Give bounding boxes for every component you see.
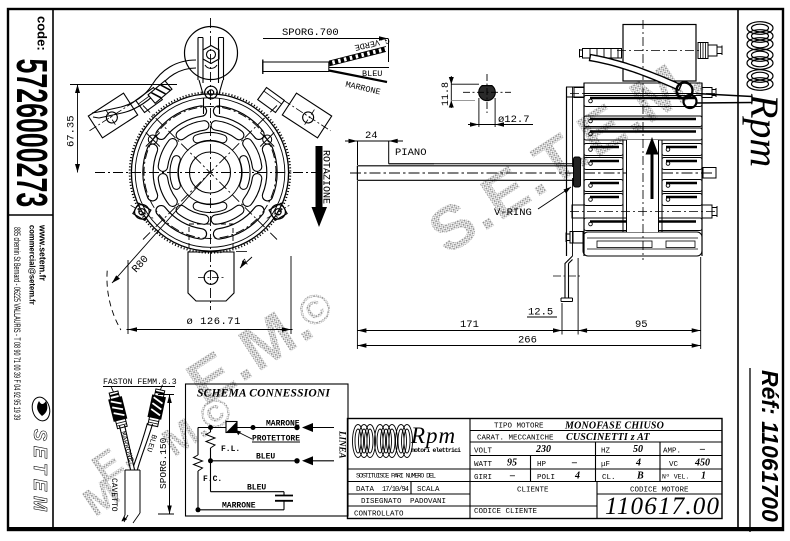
svg-text:MONOFASE CHIUSO: MONOFASE CHIUSO: [564, 421, 664, 432]
svg-text:CL.: CL.: [602, 474, 616, 482]
svg-text:GIRI: GIRI: [474, 474, 492, 482]
svg-text:B: B: [636, 471, 644, 482]
svg-text:450: 450: [694, 458, 710, 469]
svg-text:SPORG.700: SPORG.700: [282, 27, 339, 39]
svg-text:–: –: [699, 444, 705, 455]
svg-text:R80: R80: [130, 254, 152, 276]
svg-text:VC: VC: [669, 461, 679, 469]
svg-text:50: 50: [633, 444, 643, 455]
svg-text:DISEGNATO: DISEGNATO: [361, 498, 402, 506]
svg-text:24: 24: [365, 130, 378, 142]
svg-text:HZ: HZ: [601, 448, 611, 456]
svg-text:230: 230: [535, 444, 551, 455]
svg-text:–: –: [509, 471, 515, 482]
svg-text:HP: HP: [537, 461, 547, 469]
svg-text:MARRONE: MARRONE: [344, 80, 381, 98]
svg-text:motori elettrici: motori elettrici: [411, 447, 461, 454]
svg-text:TIPO MOTORE: TIPO MOTORE: [494, 423, 544, 431]
svg-text:SPORG.150: SPORG.150: [158, 437, 169, 489]
svg-text:SOSTITUISCE PARI NUMERO DEL: SOSTITUISCE PARI NUMERO DEL: [356, 473, 436, 481]
svg-text:110617.00: 110617.00: [605, 493, 720, 520]
svg-text:95: 95: [507, 458, 517, 469]
svg-text:CODICE CLIENTE: CODICE CLIENTE: [474, 508, 538, 516]
svg-text:CARAT. MECCANICHE: CARAT. MECCANICHE: [477, 435, 554, 443]
svg-text:AMP.: AMP.: [663, 448, 681, 456]
svg-text:4: 4: [574, 471, 580, 482]
svg-text:F.C.: F.C.: [203, 475, 222, 484]
svg-text:PROTETTORE: PROTETTORE: [252, 435, 300, 444]
svg-text:12.5: 12.5: [528, 307, 553, 319]
svg-text:PIANO: PIANO: [395, 147, 427, 159]
svg-text:F.L.: F.L.: [221, 445, 240, 454]
svg-text:MARRONE: MARRONE: [222, 502, 256, 511]
svg-text:BLEU: BLEU: [247, 484, 266, 493]
svg-text:commercial@setem.fr: commercial@setem.fr: [27, 225, 36, 305]
svg-text:POLI: POLI: [537, 474, 555, 482]
svg-text:CONTROLLATO: CONTROLLATO: [354, 511, 404, 519]
svg-text:CAVETTO: CAVETTO: [109, 478, 118, 512]
svg-text:11.8: 11.8: [441, 82, 452, 106]
svg-text:–: –: [571, 458, 577, 469]
svg-text:MARRONE: MARRONE: [266, 420, 300, 429]
svg-text:ø12.7: ø12.7: [498, 114, 530, 126]
svg-text:1: 1: [701, 471, 706, 482]
svg-text:SETEM: SETEM: [30, 429, 50, 516]
svg-text:ROTAZIONE: ROTAZIONE: [320, 150, 331, 204]
svg-text:WATT: WATT: [474, 461, 493, 469]
svg-text:VOLT: VOLT: [474, 448, 493, 456]
svg-text:DATA: DATA: [356, 486, 375, 494]
svg-text:Réf: 11061700: Réf: 11061700: [757, 370, 783, 522]
svg-text:SCALA: SCALA: [417, 486, 440, 494]
svg-text:95: 95: [635, 319, 648, 331]
svg-text:5726000273: 5726000273: [7, 59, 56, 208]
svg-text:Rpm: Rpm: [410, 423, 456, 448]
svg-text:17/10/94: 17/10/94: [382, 486, 409, 494]
svg-text:885 chemin St Bernard - 0622: 885 chemin St Bernard - 06225 VALLAURIS …: [12, 227, 23, 420]
svg-text:ø 126.71: ø 126.71: [187, 316, 241, 328]
svg-text:μF: μF: [601, 461, 610, 469]
svg-text:Rpm: Rpm: [742, 93, 787, 167]
svg-text:BLEU: BLEU: [256, 453, 275, 462]
svg-text:www.setem.fr: www.setem.fr: [37, 224, 47, 281]
svg-text:67.35: 67.35: [66, 115, 78, 147]
svg-text:V-RING: V-RING: [494, 207, 532, 219]
svg-text:PADOVANI: PADOVANI: [410, 498, 446, 506]
svg-text:code:: code:: [35, 16, 50, 51]
svg-text:LINEA: LINEA: [338, 430, 348, 459]
svg-text:CLIENTE: CLIENTE: [517, 487, 549, 495]
svg-text:266: 266: [518, 335, 537, 347]
svg-text:4: 4: [635, 458, 641, 469]
svg-text:FASTON FEMM.6.3: FASTON FEMM.6.3: [103, 378, 177, 387]
svg-text:Nº VEL.: Nº VEL.: [662, 474, 689, 481]
svg-text:171: 171: [460, 319, 479, 331]
svg-text:SCHEMA CONNESSIONI: SCHEMA CONNESSIONI: [197, 388, 330, 400]
svg-text:BLEU: BLEU: [362, 69, 382, 79]
svg-text:CUSCINETTI z AT: CUSCINETTI z AT: [566, 432, 650, 443]
